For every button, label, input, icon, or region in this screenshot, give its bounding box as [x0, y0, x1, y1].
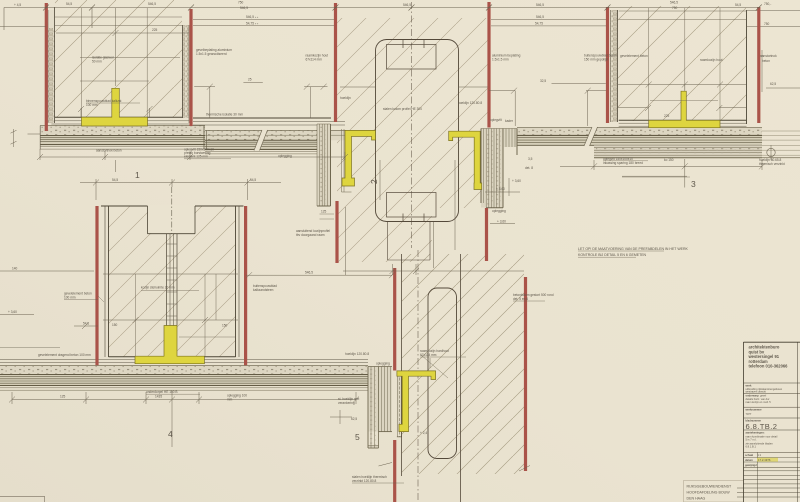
svg-text:+ 2,4: + 2,4 [420, 431, 427, 435]
svg-text:546,5 + +: 546,5 + + [246, 15, 259, 19]
svg-text:westraven utrecht: westraven utrecht [746, 390, 767, 394]
svg-text:150: 150 [112, 323, 118, 327]
svg-text:5: 5 [355, 432, 360, 442]
svg-text:beton: beton [762, 59, 770, 63]
svg-text:oplegging: oplegging [492, 209, 506, 213]
svg-text:1.5x1.5 geanodiseerd: 1.5x1.5 geanodiseerd [196, 52, 227, 56]
svg-text:inkassing sparing 180 breed: inkassing sparing 180 breed [603, 161, 643, 165]
svg-text:32,5: 32,5 [540, 79, 546, 83]
svg-text:140: 140 [12, 267, 18, 271]
svg-text:oplegging: oplegging [376, 362, 390, 366]
svg-text:3: 3 [691, 179, 696, 189]
svg-text:raamkozijn hout: raamkozijn hout [700, 58, 723, 62]
svg-text:hoeklijn: hoeklijn [340, 96, 351, 100]
svg-text:54,5: 54,5 [250, 178, 256, 182]
svg-text:100 mm: 100 mm [64, 296, 76, 300]
svg-text:150 mm gepolijst: 150 mm gepolijst [584, 58, 608, 62]
svg-text:+ 4,5: + 4,5 [14, 3, 21, 7]
svg-text:aanstortnok beton: aanstortnok beton [96, 149, 122, 153]
svg-text:546,5: 546,5 [305, 271, 313, 275]
svg-text:hoeklijn 120.80.8: hoeklijn 120.80.8 [458, 101, 482, 105]
svg-text:det. 5 en 6: det. 5 en 6 [513, 297, 528, 301]
svg-text:5 is 7 m.l.: 5 is 7 m.l. [746, 437, 757, 441]
svg-text:kader: kader [505, 119, 514, 123]
svg-text:1.5x1.5 mm: 1.5x1.5 mm [492, 58, 509, 62]
svg-text:aanstortnok: aanstortnok [760, 54, 777, 58]
svg-text:2: 2 [369, 179, 379, 184]
svg-text:raam kozijn en mull. 5: raam kozijn en mull. 5 [746, 400, 772, 404]
svg-text:62,5: 62,5 [351, 417, 357, 421]
svg-text:54,5: 54,5 [112, 178, 118, 182]
svg-text:67x114 mm: 67x114 mm [306, 58, 323, 62]
svg-text:RIJKSGEBOUWENDIENST: RIJKSGEBOUWENDIENST [687, 485, 733, 489]
svg-text:kozijn stelruimte 20 mm: kozijn stelruimte 20 mm [141, 286, 175, 290]
svg-text:54,5: 54,5 [66, 2, 72, 6]
svg-text:+ 3,60: + 3,60 [8, 310, 17, 314]
svg-text:telefoon 010-362066: telefoon 010-362066 [749, 364, 789, 369]
svg-text:546,5: 546,5 [403, 3, 411, 7]
svg-text:1:1: 1:1 [758, 453, 762, 457]
svg-text:50 mm: 50 mm [92, 60, 102, 64]
svg-text:54,75: 54,75 [535, 22, 543, 26]
svg-text:125: 125 [321, 210, 327, 214]
svg-text:54,75 + +: 54,75 + + [246, 22, 259, 26]
svg-text:element 125 mm: element 125 mm [184, 155, 208, 159]
svg-text:1435: 1435 [155, 395, 162, 399]
svg-text:werknummer: werknummer [746, 407, 762, 411]
svg-text:thermische isolatie 30 mm: thermische isolatie 30 mm [206, 113, 243, 117]
svg-text:750,-: 750,- [764, 2, 771, 6]
svg-text:thermisch verzinkt: thermisch verzinkt [759, 162, 785, 166]
svg-text:25: 25 [248, 78, 252, 82]
svg-text:+ 3,60: + 3,60 [496, 187, 505, 191]
svg-text:546,5: 546,5 [536, 15, 544, 19]
svg-text:225: 225 [664, 114, 670, 118]
svg-text:54,5: 54,5 [735, 3, 741, 7]
svg-text:546,5: 546,5 [536, 3, 544, 7]
svg-text:67x114 mm: 67x114 mm [420, 353, 437, 357]
svg-text:6.8.1.B.1: 6.8.1.B.1 [746, 444, 757, 448]
svg-text:54,5: 54,5 [83, 322, 89, 326]
svg-text:gevelelement beton: gevelelement beton [620, 54, 648, 58]
svg-text:3,5: 3,5 [528, 157, 533, 161]
svg-text:KONTROLE BIJ DETAIL 5 EN 6 GEM: KONTROLE BIJ DETAIL 5 EN 6 GEMETEN [578, 253, 647, 257]
svg-text:onderdorpel HE 150 B: onderdorpel HE 150 B [146, 390, 178, 394]
svg-text:546,5: 546,5 [240, 6, 248, 10]
svg-text:verankering: verankering [338, 401, 355, 405]
svg-text:det. 8: det. 8 [525, 166, 533, 170]
svg-text:125: 125 [60, 395, 66, 399]
svg-text:DEN HAAG: DEN HAAG [687, 497, 706, 501]
svg-text:mm: mm [227, 398, 233, 402]
svg-text:schaal: schaal [745, 453, 753, 457]
svg-text:1: 1 [135, 170, 140, 180]
svg-text:aantekeningen:: aantekeningen: [746, 431, 765, 435]
svg-text:750: 750 [764, 22, 770, 26]
svg-text:hoeklijn 120.80.8: hoeklijn 120.80.8 [345, 352, 369, 356]
svg-text:546,5: 546,5 [148, 2, 156, 6]
svg-text:oplegvilt: oplegvilt [490, 118, 502, 122]
svg-text:gewijzigd: gewijzigd [745, 463, 757, 467]
svg-text:stalen kolom profiel HE 300: stalen kolom profiel HE 300 [383, 107, 422, 111]
svg-text:datum: datum [745, 458, 753, 462]
svg-text:verzinkt 120.80.8: verzinkt 120.80.8 [352, 479, 377, 483]
svg-text:17.2.1976: 17.2.1976 [758, 458, 771, 462]
svg-text:225: 225 [152, 28, 158, 32]
svg-text:gevelelement dragend beton 100: gevelelement dragend beton 100 mm [38, 353, 91, 357]
svg-text:6.8.TB.2: 6.8.TB.2 [746, 422, 778, 431]
svg-text:kalkzandsteen: kalkzandsteen [253, 288, 274, 292]
svg-text:750: 750 [238, 1, 244, 5]
svg-text:+ 3,60: + 3,60 [512, 179, 521, 183]
svg-text:150: 150 [222, 324, 228, 328]
svg-text:62,5: 62,5 [770, 82, 776, 86]
svg-text:oplegging: oplegging [278, 154, 292, 158]
svg-text:7077: 7077 [746, 412, 752, 416]
svg-text:100 mm: 100 mm [86, 103, 98, 107]
svg-text:ko 150: ko 150 [664, 158, 674, 162]
svg-text:+ 3,60: + 3,60 [497, 220, 506, 224]
svg-text:750: 750 [672, 6, 678, 10]
svg-text:LET OP! DE MAATVOERING VAN DE: LET OP! DE MAATVOERING VAN DE PREFABDELE… [578, 247, 688, 251]
svg-text:546,5: 546,5 [670, 1, 678, 5]
svg-text:tbv doorgaand raam: tbv doorgaand raam [296, 233, 325, 237]
svg-text:HOOFDAFDELING BOUW: HOOFDAFDELING BOUW [687, 491, 731, 495]
